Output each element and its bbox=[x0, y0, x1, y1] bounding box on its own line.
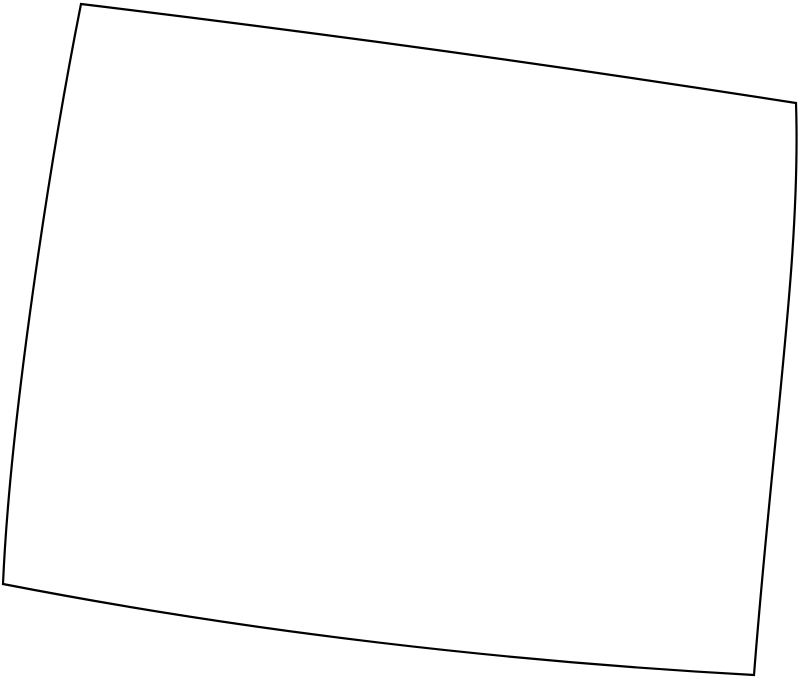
state-outline-path bbox=[3, 4, 797, 675]
state-outline-map bbox=[0, 0, 800, 683]
map-canvas bbox=[0, 0, 800, 683]
